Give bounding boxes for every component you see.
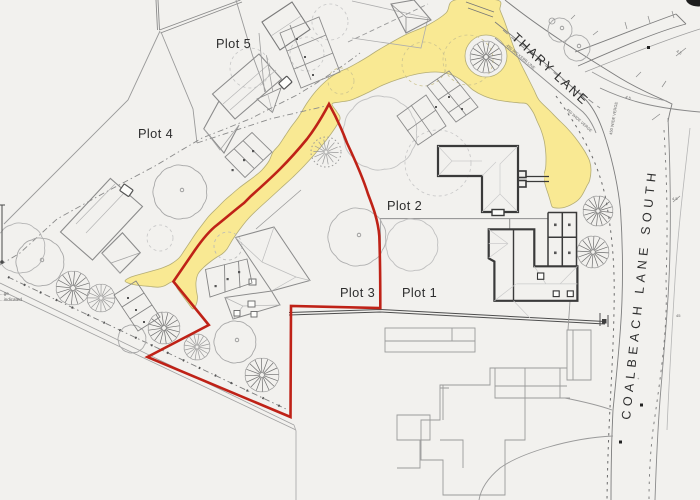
- svg-text:Plot 5: Plot 5: [216, 36, 251, 51]
- svg-text:Plot 3: Plot 3: [340, 285, 375, 300]
- svg-text:Plot 2: Plot 2: [387, 198, 422, 213]
- svg-text:...ge: ...ge: [0, 291, 9, 296]
- svg-text:...indicated: ...indicated: [0, 297, 22, 302]
- svg-text:Plot 1: Plot 1: [402, 285, 437, 300]
- svg-text:45: 45: [676, 313, 681, 318]
- svg-text:Plot 4: Plot 4: [138, 126, 173, 141]
